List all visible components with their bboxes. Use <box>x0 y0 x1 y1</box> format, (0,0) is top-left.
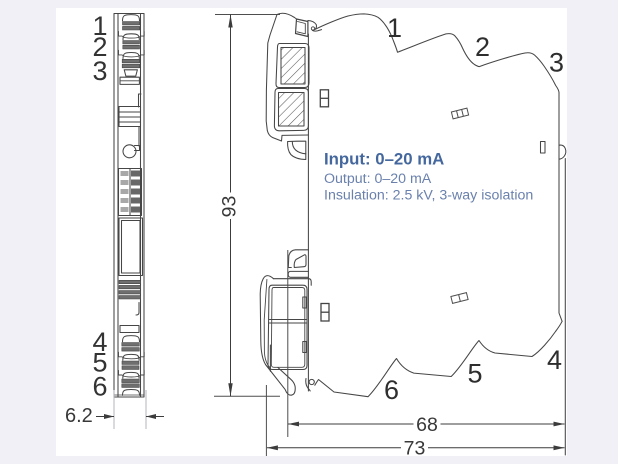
svg-text:3: 3 <box>549 48 564 78</box>
svg-text:6: 6 <box>384 375 399 405</box>
svg-text:6.2: 6.2 <box>65 405 93 427</box>
svg-text:4: 4 <box>547 345 562 375</box>
svg-text:2: 2 <box>475 32 490 62</box>
svg-text:6: 6 <box>92 372 107 402</box>
svg-text:3: 3 <box>92 56 107 86</box>
svg-text:93: 93 <box>218 196 240 218</box>
svg-text:Input: 0–20 mA: Input: 0–20 mA <box>324 150 444 169</box>
svg-text:1: 1 <box>387 13 402 43</box>
svg-text:5: 5 <box>467 359 482 389</box>
svg-text:68: 68 <box>416 414 438 436</box>
svg-text:Insulation: 2.5 kV, 3-way isol: Insulation: 2.5 kV, 3-way isolation <box>324 187 533 203</box>
svg-text:Output: 0–20 mA: Output: 0–20 mA <box>324 171 432 187</box>
svg-text:73: 73 <box>404 438 426 460</box>
